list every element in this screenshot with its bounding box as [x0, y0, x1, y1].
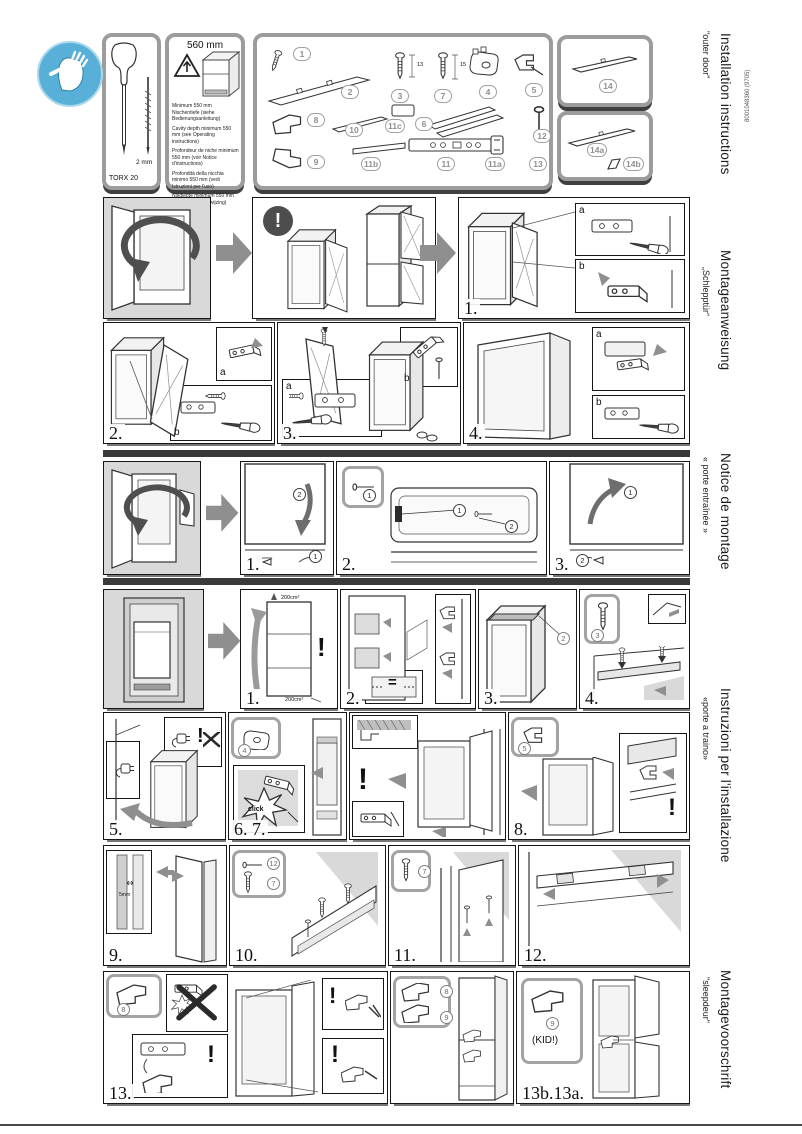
- part-2-bubble: 2: [341, 85, 359, 99]
- cavity-notes: Minimum 550 mm Nischentiefe (siehe Bedie…: [172, 103, 240, 209]
- section-subtitle-it: «porte a traino»: [701, 697, 711, 760]
- step4-inset-b: b: [592, 395, 685, 439]
- screw-icon: [400, 857, 416, 885]
- exclamation-mark: !: [197, 726, 204, 746]
- section-title-fr: Notice de montage: [718, 453, 733, 570]
- exclamation-mark: !: [317, 634, 326, 660]
- cover-top-inset: !: [322, 978, 384, 1030]
- exclamation-mark: !: [331, 1043, 339, 1067]
- part-2-ref-circle: 2: [557, 632, 570, 645]
- step10-panel: 12 7 10.: [229, 845, 386, 966]
- part-14a-bubble: 14a: [587, 143, 607, 157]
- cover-bottom-inset: !: [322, 1038, 384, 1094]
- seq-1-circle: 1: [624, 486, 637, 499]
- hinge-screws-drawing: [177, 392, 267, 436]
- step3-inset-b: b: [400, 327, 458, 387]
- stepn2-panel: = 2.: [340, 589, 476, 709]
- drill-bit-icon: [142, 77, 154, 157]
- inset-b-label: b: [596, 398, 602, 408]
- covers-inset: 8 9: [393, 976, 451, 1028]
- screw-icon: [241, 871, 259, 897]
- step2-inset-b: b: [170, 385, 272, 441]
- plate-screwdriver-drawing: [599, 404, 679, 436]
- part-8-ref-circle: 8: [440, 985, 453, 998]
- exclamation-badge-icon: !: [263, 206, 293, 236]
- inset-b-label: b: [174, 428, 180, 438]
- stepn4-screw-inset: 3: [584, 594, 620, 644]
- note-it: Profondità della nicchia minimo 550 mm (…: [172, 171, 240, 191]
- step4-inset-a: a: [592, 327, 685, 391]
- plate-screws-drawing: [289, 390, 377, 434]
- step4-panel: a b 4.: [463, 322, 690, 444]
- part-10-bubble: 10: [345, 123, 363, 137]
- step1-panel: a b 1.: [458, 197, 690, 319]
- door-closed-drawing: [470, 327, 588, 441]
- door-lift-drawing: [550, 462, 687, 572]
- step2-inset-a: a: [216, 327, 272, 381]
- part-8-ref-circle: 8: [117, 1003, 130, 1016]
- step13-panel: 8 ! !: [103, 971, 388, 1104]
- section-subtitle-nl: "sleepdeur": [701, 977, 711, 1023]
- parts-panel: 13 15 1 2 3 7 4 5 8 10 11c 6 12 9 11b 11…: [253, 33, 553, 190]
- kid-lock-inset: 9 (KID!): [521, 978, 583, 1064]
- equals-symbol: =: [388, 674, 397, 691]
- kid-label: (KID!): [532, 1035, 558, 1046]
- intro-door-swing-panel: [103, 197, 211, 319]
- plug-icon: [169, 726, 197, 756]
- part-7-ref-circle: 7: [267, 877, 280, 890]
- seq-2-circle: 2: [293, 488, 306, 501]
- flow-arrow-icon: [216, 232, 253, 275]
- warning-two-fridges-panel: !: [252, 197, 436, 319]
- step5-panel: ! 5.: [103, 712, 226, 840]
- part-8-bubble: 8: [307, 113, 325, 127]
- step-number: 3.: [482, 689, 500, 708]
- intro-niche-panel: [103, 589, 204, 709]
- stepf3-panel: 1 2 3.: [549, 461, 690, 575]
- part-11c-bubble: 11c: [385, 119, 405, 133]
- part-12-ref-circle: 12: [267, 857, 280, 870]
- inset-a-label: a: [579, 206, 585, 216]
- seq-2-circle: 2: [505, 520, 518, 533]
- section-subtitle-en: "outer door": [701, 31, 711, 78]
- no-pry-drawing: [169, 977, 223, 1027]
- gap-label: 5mm: [119, 893, 130, 898]
- section-title-de: Montageanweisung: [718, 250, 733, 370]
- note-en: Cavity depth minimum 550 mm (see Operati…: [172, 126, 240, 146]
- step10-parts-inset: 12 7: [232, 850, 286, 898]
- step-number: 2.: [107, 424, 125, 443]
- step-number: 8.: [512, 820, 530, 839]
- step-number: 9.: [107, 946, 125, 965]
- accessory-panel-14ab: 14a 14b: [557, 111, 653, 181]
- part-6-bubble: 6: [415, 117, 433, 131]
- inset-a-label: a: [286, 382, 292, 392]
- gloves-icon: [36, 40, 104, 108]
- part-11a-bubble: 11a: [485, 157, 505, 171]
- stepn4-panel: 3 4.: [579, 589, 690, 709]
- step-number: 3.: [281, 424, 299, 443]
- section-subtitle-de: „Schlepptür“: [701, 267, 711, 316]
- stepn3-panel: 2 3.: [478, 589, 577, 709]
- part-13-bubble: 13: [529, 157, 547, 171]
- part-14b-drawing: [605, 157, 623, 173]
- wall-clips-inset: [435, 594, 471, 704]
- step-number: 4.: [583, 689, 601, 708]
- screw15-dim: 15: [460, 63, 466, 69]
- part-9-ref-circle: 9: [546, 1017, 559, 1030]
- intro-panel-removal: [103, 461, 201, 575]
- step8-panel: 5 ! 8.: [508, 712, 690, 840]
- step-number: 10.: [233, 946, 260, 965]
- exclamation-mark: !: [358, 765, 368, 795]
- cavity-width-label: 560 mm: [169, 40, 241, 51]
- bracket-detail-drawing: [357, 808, 401, 832]
- step1-inset-b: b: [575, 259, 685, 313]
- step-number: 1.: [244, 689, 262, 708]
- plug-icon: [115, 756, 137, 786]
- fridge-in-niche-drawing: [106, 592, 201, 706]
- exclamation-mark: !: [668, 796, 676, 820]
- step-number: 4.: [467, 424, 485, 443]
- cover-part-icon: [530, 989, 574, 1017]
- bracket-insert-drawing: [599, 338, 679, 386]
- step-number: 13.: [107, 1084, 134, 1103]
- inset-b-label: b: [404, 374, 410, 384]
- covers-placement-panel: 8 9: [390, 971, 514, 1104]
- door-align-warning-panel: !: [349, 712, 506, 840]
- flow-arrow-icon: [208, 622, 241, 661]
- step2-panel: a b 2.: [103, 322, 275, 444]
- open-door-drawing: [232, 980, 322, 1100]
- step9-panel: 5mm 9.: [103, 845, 227, 966]
- screw-icon: [595, 601, 615, 631]
- part-9-bubble: 9: [307, 155, 325, 169]
- cover-pliers-drawing: [345, 993, 381, 1025]
- step-number: 6. 7.: [232, 820, 268, 839]
- vent-area-bottom-label: 200cm²: [285, 698, 303, 704]
- stepn1-panel: 200cm² 200cm² ! 1.: [240, 589, 338, 709]
- panel-removal-drawing: [106, 464, 198, 572]
- step11-screw-inset: 7: [391, 850, 431, 892]
- section-title-nl: Montagevoorschrift: [718, 970, 733, 1088]
- part-12-bubble: 12: [533, 129, 551, 143]
- step6-7-panel: 4 click 6. 7.: [228, 712, 347, 840]
- inset-a-label: a: [220, 368, 226, 378]
- cross-icon: [203, 732, 221, 750]
- part-7-ref-circle: 7: [418, 865, 431, 878]
- inset-b-label: b: [579, 262, 585, 272]
- rail-engage-inset: !: [619, 733, 687, 833]
- screw13-dim: 13: [417, 63, 423, 69]
- warning-triangle-icon: [173, 53, 201, 79]
- step-number: 1.: [462, 299, 480, 318]
- accessory-panel-14: 14: [557, 35, 653, 107]
- step-number: 11.: [392, 946, 418, 965]
- part4-inset: 4: [231, 717, 281, 759]
- step1-inset-a: a: [575, 203, 685, 256]
- vent-area-top-label: 200cm²: [281, 596, 299, 602]
- seq-1-circle: 1: [363, 489, 376, 502]
- part-4-ref-circle: 4: [238, 744, 251, 757]
- section-divider-bar: [103, 578, 690, 585]
- cavity-panel: 560 mm Minimum 550 mm Nischentiefe (sieh…: [165, 33, 245, 190]
- flow-arrow-icon: [420, 232, 457, 275]
- part-3-ref-circle: 3: [591, 629, 604, 642]
- note-fr: Profondeur de niche minimum 550 mm (voir…: [172, 148, 240, 168]
- exclamation-mark: !: [329, 985, 336, 1007]
- flow-arrow-icon: [206, 494, 239, 533]
- exclamation-mark: !: [207, 1043, 215, 1067]
- step-number: 3.: [553, 555, 571, 574]
- leveling-inset: =: [365, 670, 423, 704]
- stepf2-pin-inset: 1: [342, 466, 384, 508]
- part-14-drawing: [571, 51, 643, 77]
- two-fridges-drawing: [281, 202, 433, 316]
- bracket-screw-drawing: [409, 334, 451, 380]
- part-9-ref-circle: 9: [440, 1011, 453, 1024]
- step-number: 1.: [244, 555, 262, 574]
- step11-panel: 7 11.: [388, 845, 516, 966]
- page-bottom-rule: [0, 1124, 802, 1126]
- fridge-open-door-drawing: [463, 202, 575, 316]
- note-de: Minimum 550 mm Nischentiefe (siehe Bedie…: [172, 103, 240, 123]
- seq-1-circle: 1: [309, 550, 322, 563]
- niche-sketch: [201, 50, 241, 100]
- part-14b-bubble: 14b: [623, 157, 644, 171]
- inset-a-label: a: [596, 330, 602, 340]
- step-number: 2.: [340, 555, 358, 574]
- rail-screws-drawing: [286, 850, 382, 962]
- part-11b-bubble: 11b: [361, 157, 381, 171]
- fridge-covers-drawing: [451, 974, 511, 1102]
- step12-panel: 12.: [518, 845, 690, 966]
- clips-drawing: [438, 599, 468, 699]
- seq-1-circle: 1: [453, 504, 466, 517]
- part-11-bubble: 11: [437, 157, 455, 171]
- part-4-bubble: 4: [479, 85, 497, 99]
- two-door-fridge-drawing: [587, 974, 687, 1102]
- step-number: 5.: [107, 820, 125, 839]
- stepf1-panel: 2 1 1.: [240, 461, 334, 575]
- torx-label: TORX 20: [109, 175, 138, 182]
- part-1-bubble: 1: [293, 47, 311, 61]
- part8-inset: 8: [106, 974, 162, 1018]
- section-title-it: Instruzioni per l'installazione: [718, 688, 733, 863]
- rail-corner-drawing: [651, 597, 683, 621]
- section-title-en: Installation instructions: [718, 33, 733, 175]
- step3-panel: a b 3.: [277, 322, 461, 444]
- screwdriver-icon: [109, 41, 139, 163]
- door-adjust-drawing: [154, 850, 224, 964]
- part-3-bubble: 3: [391, 89, 409, 103]
- rail-corner-inset: [648, 594, 686, 624]
- step-number: 12.: [522, 946, 549, 965]
- hinge-unscrew-drawing: [584, 214, 680, 254]
- part5-inset: 5: [511, 717, 559, 757]
- step-number: 2.: [344, 689, 362, 708]
- step13b-panel: 9 (KID!) 13b.13a.: [516, 971, 690, 1104]
- seq-2-circle: 2: [576, 554, 589, 567]
- bracket-up-drawing: [225, 336, 267, 372]
- cover-tool-drawing: [341, 1063, 381, 1091]
- section-divider-bar: [103, 450, 690, 457]
- bit-size-label: 2 mm: [136, 160, 152, 167]
- no-pry-warning-inset: [166, 974, 228, 1032]
- part-5-ref-circle: 5: [518, 742, 531, 755]
- stepf2-panel: 1 1 2 2.: [336, 461, 547, 575]
- part-7-bubble: 7: [434, 89, 452, 103]
- tools-panel: 2 mm TORX 20: [102, 33, 161, 190]
- door-pins-drawing: [433, 850, 513, 962]
- document-number: 8001048360 (9705): [745, 70, 752, 122]
- step-number: 13b.13a.: [520, 1084, 586, 1103]
- niche-fridge-drawing: [309, 717, 345, 837]
- click-label: click: [248, 806, 264, 813]
- part-14-bubble: 14: [599, 79, 617, 93]
- gap-inset: 5mm: [106, 850, 152, 934]
- cover-fit-inset: !: [132, 1034, 228, 1098]
- bracket-remove-drawing: [584, 268, 680, 310]
- part-5-bubble: 5: [525, 83, 543, 97]
- door-topview-drawing: [387, 470, 543, 570]
- door-swing-drawing: [104, 198, 208, 316]
- instruction-sheet: 8001048360 (9705) Installation instructi…: [0, 0, 802, 1134]
- section-subtitle-fr: « porte entraînée »: [701, 457, 711, 533]
